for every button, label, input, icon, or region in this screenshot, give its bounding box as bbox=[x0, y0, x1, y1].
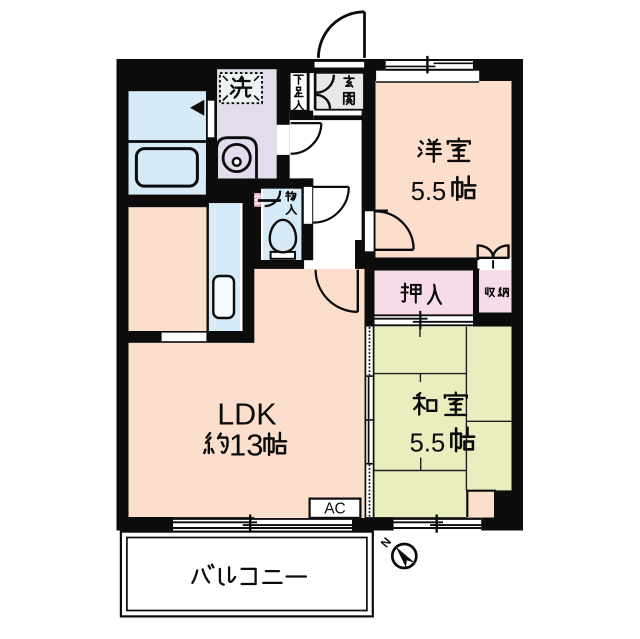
svg-text:5.5: 5.5 bbox=[411, 178, 446, 206]
svg-text:AC: AC bbox=[324, 501, 346, 518]
svg-text:5.5: 5.5 bbox=[410, 429, 445, 457]
svg-text:LDK: LDK bbox=[217, 397, 276, 431]
svg-text:13: 13 bbox=[229, 428, 263, 463]
